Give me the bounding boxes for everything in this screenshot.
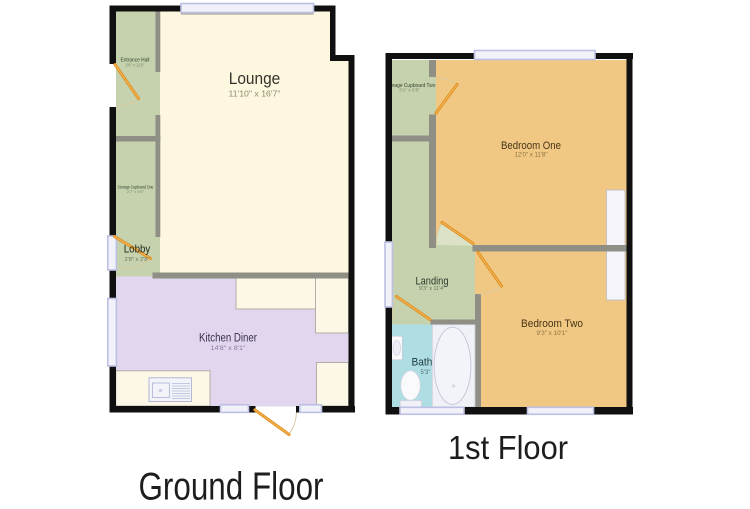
svg-text:2'8" x 2'8": 2'8" x 2'8" — [125, 257, 150, 263]
svg-text:2'6" x 11'0": 2'6" x 11'0" — [126, 63, 145, 68]
svg-text:Bedroom One: Bedroom One — [501, 140, 561, 152]
svg-text:12'0" x 11'8": 12'0" x 11'8" — [515, 153, 548, 159]
svg-text:Bedroom Two: Bedroom Two — [521, 318, 583, 330]
svg-text:Kitchen Diner: Kitchen Diner — [199, 333, 257, 345]
svg-text:3'1" x 6'5": 3'1" x 6'5" — [399, 88, 420, 93]
svg-text:11'10" x 16'7": 11'10" x 16'7" — [229, 90, 281, 99]
svg-text:9'3" x 11'4": 9'3" x 11'4" — [419, 286, 445, 292]
svg-text:9'3" x 10'1": 9'3" x 10'1" — [537, 331, 568, 337]
svg-text:1st Floor: 1st Floor — [448, 429, 568, 466]
svg-text:Ground Floor: Ground Floor — [139, 466, 324, 509]
svg-text:Lounge: Lounge — [229, 70, 281, 88]
svg-text:14'8" x 8'1": 14'8" x 8'1" — [211, 345, 247, 352]
svg-text:2'7" x 5'6": 2'7" x 5'6" — [127, 189, 145, 194]
svg-text:Lobby: Lobby — [124, 244, 151, 256]
